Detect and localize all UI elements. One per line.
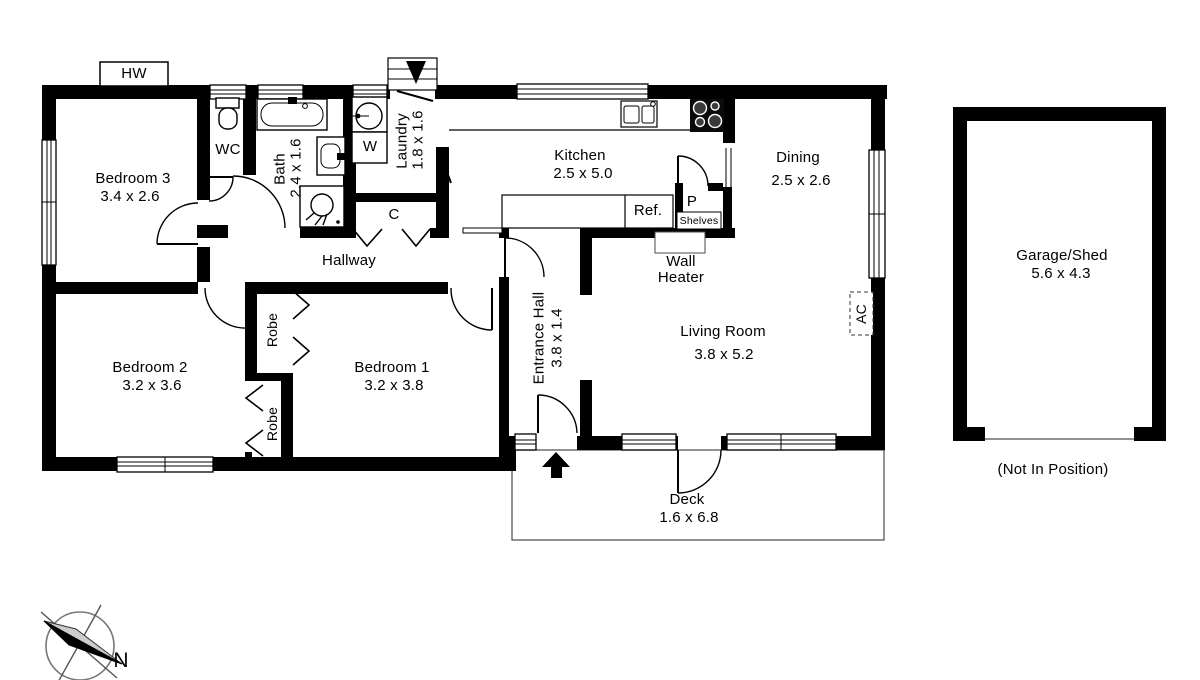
wall-wc-south <box>197 225 228 238</box>
window-bedroom3-left <box>42 140 56 265</box>
wall-robe-lower-stub <box>245 452 252 466</box>
kitchen-label: Kitchen <box>554 148 605 164</box>
shower-icon <box>300 186 344 227</box>
hallway-label: Hallway <box>322 253 376 269</box>
door-wc <box>209 177 233 201</box>
bifold-robe2-1 <box>246 385 263 411</box>
living-room-dims: 3.8 x 5.2 <box>694 347 753 363</box>
dining-dims: 2.5 x 2.6 <box>771 173 830 189</box>
wall-heater-label: Wall Heater <box>646 254 716 286</box>
washer-label: W <box>363 139 377 155</box>
window-bath-top <box>258 85 303 99</box>
bathtub-icon <box>257 97 327 130</box>
bedroom3-label: Bedroom 3 <box>95 171 170 187</box>
robe-lower-label: Robe <box>264 407 280 441</box>
deck-label: Deck <box>670 492 705 508</box>
windows <box>42 84 885 472</box>
dining-label: Dining <box>776 150 820 166</box>
robe-upper-label: Robe <box>264 313 280 347</box>
window-kitchen-top <box>517 84 648 99</box>
compass-north-label: N <box>113 653 128 669</box>
wall-pantry-right <box>723 187 732 228</box>
garage-note: (Not In Position) <box>998 462 1109 478</box>
fixtures <box>100 58 873 478</box>
bedroom1-label: Bedroom 1 <box>354 360 429 376</box>
window-bedroom2-bottom <box>117 457 213 472</box>
door-bedroom2 <box>205 288 246 328</box>
garage-dims: 5.6 x 4.3 <box>1031 266 1090 282</box>
compass-rose <box>41 605 122 680</box>
compass-needle-dark <box>44 621 122 664</box>
floorplan-page: HW Bedroom 3 3.4 x 2.6 WC Bath 2.4 x 1.6… <box>0 0 1200 680</box>
wall-cupboard-stub <box>430 228 448 238</box>
door-top-entry <box>397 91 433 101</box>
laundry-dims: 1.8 x 1.6 <box>410 110 427 169</box>
deck-dims: 1.6 x 6.8 <box>659 510 718 526</box>
wall-hallway-south-left <box>56 282 198 294</box>
bedroom3-dims: 3.4 x 2.6 <box>100 189 159 205</box>
bifold-cupboard-1 <box>353 229 382 246</box>
ac-label: AC <box>853 304 869 324</box>
garage-wall-left <box>953 107 967 441</box>
laundry-label: Laundry <box>394 113 411 169</box>
shelves-label: Shelves <box>680 213 719 229</box>
door-bedroom1 <box>451 288 492 330</box>
cupboard-label: C <box>388 207 399 223</box>
living-room-label: Living Room <box>680 324 766 340</box>
kitchen-dims: 2.5 x 5.0 <box>553 166 612 182</box>
hot-water-label: HW <box>121 66 146 82</box>
wall-robe-lower-right <box>281 373 293 470</box>
entrance-hall-dims: 3.8 x 1.4 <box>549 308 566 367</box>
wall-stove-side <box>723 99 735 143</box>
bath-dims: 2.4 x 1.6 <box>288 138 305 197</box>
pantry-label: P <box>687 194 697 210</box>
kitchen-sink-icon <box>621 101 657 127</box>
wall-wc-bath <box>243 99 256 175</box>
bedroom1-dims: 3.2 x 3.8 <box>364 378 423 394</box>
bifold-cupboard-2 <box>402 229 430 246</box>
door-front-entrance <box>538 395 577 433</box>
wall-top-right <box>435 85 887 99</box>
wall-hallway-south-right <box>245 282 448 294</box>
wall-entrance-left <box>499 277 509 459</box>
entry-steps <box>388 58 437 90</box>
wall-bed3-wc-upper <box>197 99 210 200</box>
stove-icon <box>690 99 724 132</box>
wall-cupboard-top <box>352 193 449 202</box>
wall-bottom-left <box>42 457 512 471</box>
wc-label: WC <box>215 142 240 158</box>
door-kitchen-entrance <box>505 238 544 277</box>
bedroom2-dims: 3.2 x 3.6 <box>122 378 181 394</box>
refrigerator-label: Ref. <box>634 203 662 219</box>
entrance-hall-label: Entrance Hall <box>531 292 548 385</box>
garage-wall-top <box>953 107 1166 121</box>
toilet-icon <box>216 98 239 129</box>
wall-heater-box <box>655 232 705 253</box>
wall-bed3-wc-lower <box>197 247 210 282</box>
laundry-trough-icon <box>352 97 387 132</box>
walls <box>42 85 887 471</box>
bifold-robe1-2 <box>293 337 309 365</box>
bedroom2-label: Bedroom 2 <box>112 360 187 376</box>
garage-wall-right <box>1152 107 1166 441</box>
wall-pantry-stub <box>708 183 723 191</box>
wall-right-upper <box>871 85 885 150</box>
bath-label: Bath <box>272 153 289 185</box>
bath-sink-icon <box>317 137 345 175</box>
window-living1-bottom <box>622 434 676 450</box>
window-entrance-bottom <box>515 434 536 450</box>
door-bedroom3 <box>157 203 198 244</box>
window-living2-bottom <box>727 434 836 450</box>
door-pantry <box>678 156 708 186</box>
garage-wall-bottom-left <box>953 427 985 441</box>
wall-robe-upper-stub <box>281 282 292 294</box>
wall-right-lower <box>871 277 885 450</box>
bifold-robe1-1 <box>293 291 309 319</box>
wall-entrance-living-upper <box>580 228 592 295</box>
window-wc-top <box>210 85 246 99</box>
window-dining-right <box>869 150 885 278</box>
garage-wall-bottom-right <box>1134 427 1166 441</box>
floorplan-drawing <box>0 0 1200 680</box>
garage-label: Garage/Shed <box>1016 248 1107 264</box>
wall-entrance-living-lower <box>580 380 592 438</box>
